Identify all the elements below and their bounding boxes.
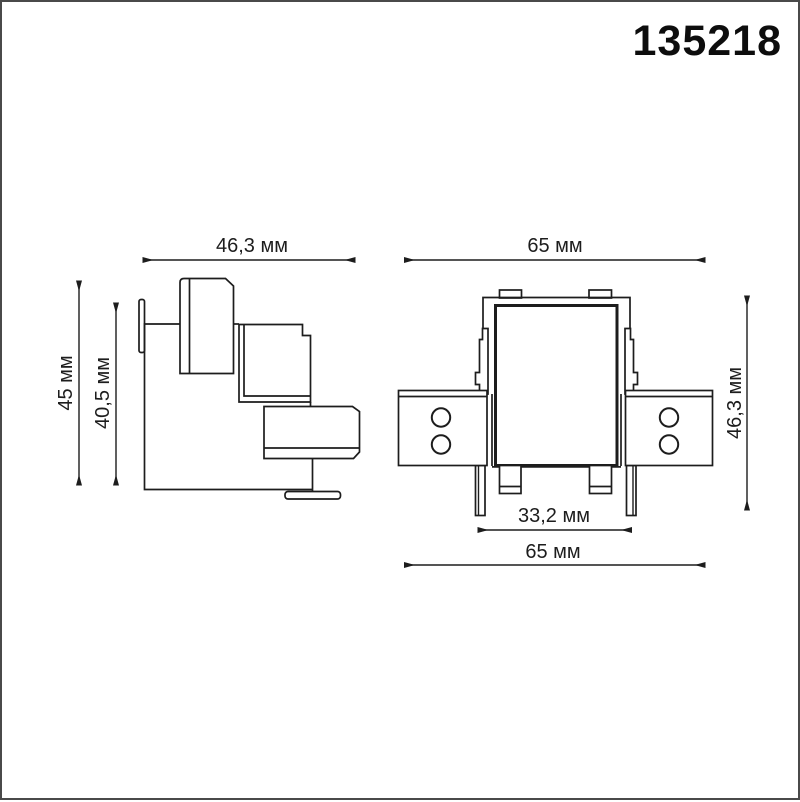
front-dim-height: 46,3 мм	[724, 296, 747, 510]
front-upper-clip-right	[625, 329, 638, 395]
front-dim-width-inner-label: 33,2 мм	[518, 505, 590, 527]
technical-drawing: 46,3 мм 45 мм 40,5 мм	[2, 2, 800, 802]
wing-hole	[660, 435, 678, 453]
wing-hole	[432, 408, 450, 426]
side-dim-width-label: 46,3 мм	[216, 235, 288, 257]
front-dim-height-label: 46,3 мм	[724, 367, 746, 439]
front-view-outline	[399, 290, 713, 516]
side-dim-width: 46,3 мм	[143, 235, 355, 260]
side-view-outline	[139, 279, 360, 500]
front-dim-width-inner: 33,2 мм	[478, 505, 632, 530]
front-lower-strip-left	[476, 466, 486, 516]
front-dim-width-top: 65 мм	[405, 235, 706, 260]
side-foot-plate	[285, 492, 341, 500]
wing-hole	[660, 408, 678, 426]
front-bottom-tab-right	[590, 466, 612, 494]
side-dim-height-total-label: 45 мм	[55, 355, 77, 410]
front-dim-width-bottom: 65 мм	[405, 541, 706, 565]
front-wing-right	[626, 391, 713, 466]
side-dim-height-total: 45 мм	[55, 281, 79, 485]
front-dim-width-top-label: 65 мм	[527, 235, 582, 257]
side-dim-height-inner: 40,5 мм	[92, 303, 116, 485]
side-dim-height-inner-label: 40,5 мм	[92, 357, 114, 429]
side-view: 46,3 мм 45 мм 40,5 мм	[55, 235, 360, 499]
front-central-body	[496, 306, 618, 466]
side-lower-block	[264, 407, 360, 459]
side-upper-block	[180, 279, 234, 374]
front-bottom-tab-left	[500, 466, 522, 494]
wing-hole	[432, 435, 450, 453]
front-view: 65 мм 46,3 мм 33,2 мм 65 мм	[399, 235, 748, 565]
front-upper-clip-left	[476, 329, 489, 395]
front-lower-strip-right	[627, 466, 637, 516]
datasheet-page: { "meta": { "background_color": "#ffffff…	[0, 0, 800, 800]
front-wing-left	[399, 391, 488, 466]
front-dim-width-bottom-label: 65 мм	[525, 541, 580, 563]
side-middle-block	[239, 325, 311, 403]
